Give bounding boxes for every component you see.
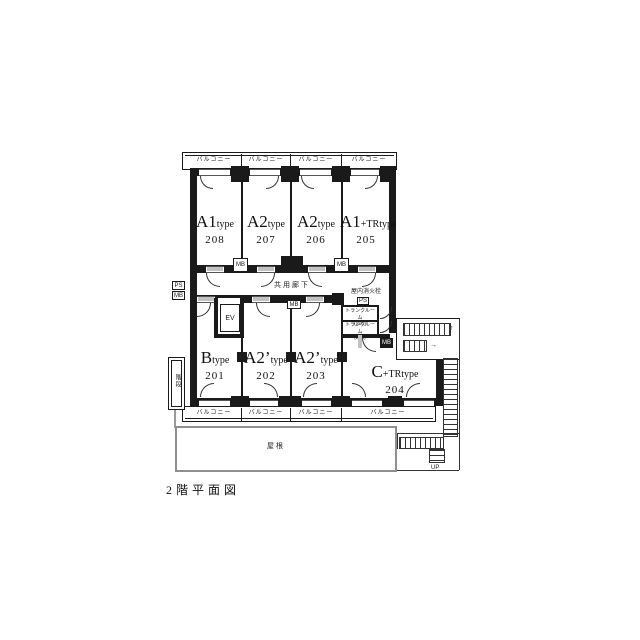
exterior-stairs [399,437,444,449]
balcony-label: バルコニー [294,410,338,416]
wall-pier [281,166,299,182]
door-swing [301,176,314,189]
room-number: 203 [293,370,339,382]
wall-pier [231,166,249,182]
door-threshold [358,335,362,348]
meter-box: MB [287,300,301,309]
balcony-label: バルコニー [244,410,288,416]
fire-hydrant-label: 屋内消火栓 [351,289,381,295]
door-lintel [359,267,375,271]
door-swing [308,273,322,287]
trunk-wall [377,305,379,335]
door-swing [200,176,213,189]
stair-direction-arrow: → [430,342,437,349]
door-lintel [253,297,269,301]
balcony-label: バルコニー [294,157,338,163]
pipe-space: PS [357,297,369,305]
door-swing [206,273,220,287]
pipe-space: PS [172,281,185,290]
room-type: A1 [340,212,361,231]
room-type: A2’ [244,348,270,367]
door-lintel [207,267,223,271]
room-type: A2’ [294,348,320,367]
room-type-suffix: +TRtype [383,369,419,380]
site-outline [459,318,460,470]
room-label-206: A2type 206 [293,212,339,246]
door-lintel [309,267,325,271]
room-label-203: A2’type 203 [293,348,339,382]
room-type-suffix: type [268,219,285,230]
room-type: A2 [297,212,318,231]
meter-box: MB [233,258,248,272]
room-type-suffix: type [217,219,234,230]
stairs [403,323,451,336]
exterior-stairs [429,449,445,463]
stair-outline [397,433,398,449]
door-swing [365,176,378,189]
stair-direction-arrow: ↑ [450,325,454,332]
door-swing [303,383,317,397]
room-type-suffix: type [321,355,338,366]
room-label-207: A2type 207 [243,212,289,246]
wall-pier [332,166,350,182]
window [300,169,331,176]
door-lintel [198,297,214,301]
room-type-suffix: +TRtype [361,219,397,230]
room-label-202: A2’type 202 [243,348,289,382]
room-number: 207 [243,234,289,246]
balcony-divider [341,408,342,421]
roof-label: 屋根 [267,443,285,450]
balcony-divider [290,408,291,421]
room-number: 201 [192,370,238,382]
door-swing [197,303,211,317]
door-lintel [258,267,274,271]
window [351,169,379,176]
room-type: A2 [247,212,268,231]
room-number: 205 [340,234,392,246]
door-swing [261,273,275,287]
door-swing [306,303,320,317]
corridor-label: 共用廊下 [274,280,310,290]
room-type: A1 [196,212,217,231]
room-number: 208 [192,234,238,246]
door-swing [362,338,376,352]
site-outline [397,470,459,471]
balcony-divider [241,408,242,421]
meter-box: MB [380,338,393,348]
side-stair-label: 階段 [173,374,182,388]
balcony-label: バルコニー [192,157,236,163]
trunk-room-name: トランクルーム [345,308,375,321]
room-type: C [372,362,383,381]
window [250,169,280,176]
balcony-label: バルコニー [192,410,236,416]
room-label-205: A1+TRtype 205 [340,212,392,246]
unit-divider [290,176,292,265]
unit-divider [290,303,292,398]
room-type-suffix: type [318,219,335,230]
balcony-label: バルコニー [366,410,410,416]
door-swing [266,176,279,189]
plan-caption: 2階平面図 [166,481,240,498]
meter-box: MB [172,291,185,300]
door-lintel [307,297,323,301]
exterior-stairs [443,358,458,437]
wall-pier [380,166,396,182]
balcony-label: バルコニー [347,157,391,163]
stair-outline [397,433,459,434]
roof-area [175,426,397,472]
meter-box: MB [334,258,349,272]
room-type-suffix: type [212,355,229,366]
balcony-parapet-line [185,418,433,419]
wall-pillar [332,293,344,305]
room-number: 206 [293,234,339,246]
elevator-cab: EV [220,304,240,332]
room-type: B [201,348,212,367]
stair-up-label: UP [431,465,439,471]
room-number: 202 [243,370,289,382]
wall-pillar [281,256,303,273]
door-swing [200,383,214,397]
trunk-room-name: トランクルーム [345,322,375,335]
room-type-suffix: type [271,355,288,366]
elevator-label: EV [225,315,234,322]
door-swing [362,273,376,287]
door-swing [256,303,270,317]
stairs [403,340,427,352]
room-label-201: Btype 201 [192,348,238,382]
door-swing [264,383,278,397]
room-label-208: A1type 208 [192,212,238,246]
balcony-label: バルコニー [244,157,288,163]
window [199,169,230,176]
trunk-wall [342,305,378,307]
floor-plan-page: バルコニー バルコニー バルコニー バルコニー A1type 208 A2typ… [0,0,640,640]
